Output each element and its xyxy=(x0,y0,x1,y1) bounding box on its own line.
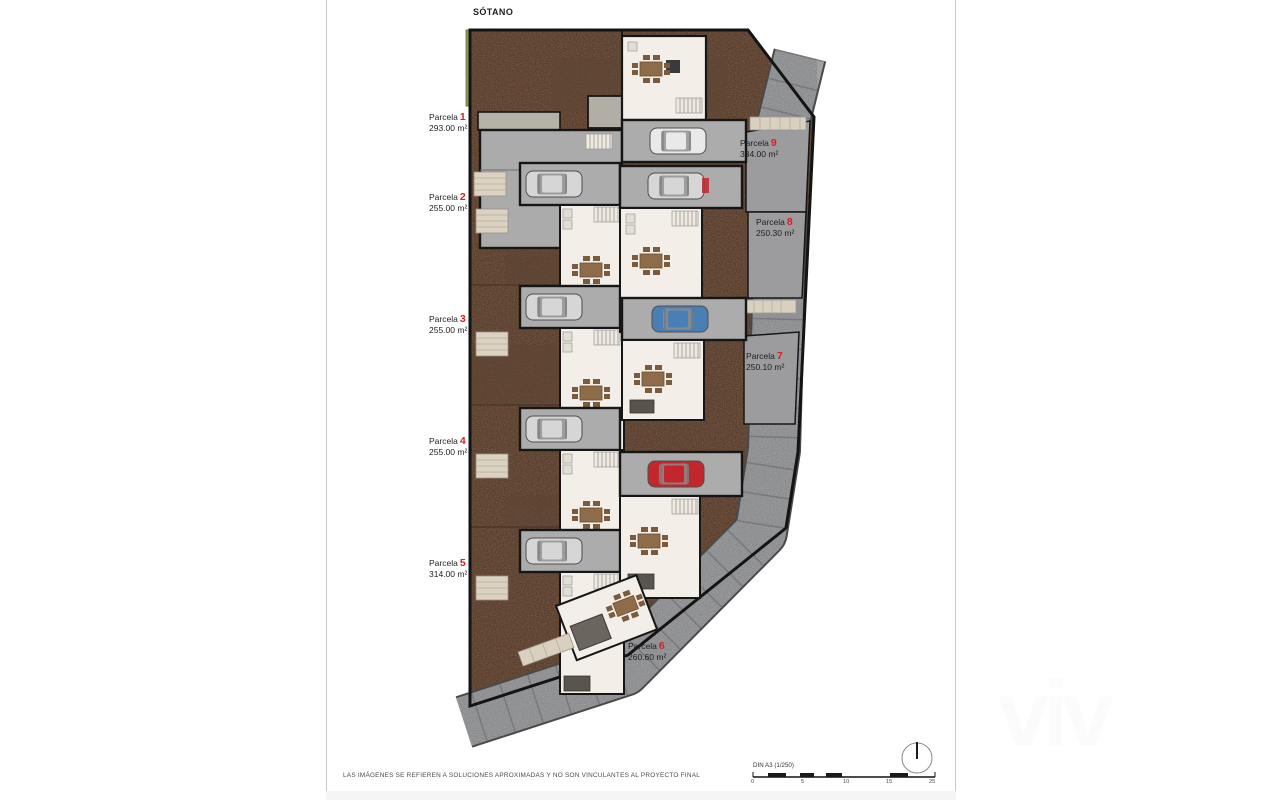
scale-bar-label: DIN A3 (1/250) xyxy=(753,762,794,769)
scale-tick: 5 xyxy=(801,779,804,785)
parcel-label-3: Parcela3 255.00 m² xyxy=(429,314,467,335)
scale-bar-graphic xyxy=(753,772,935,777)
parcel-label-7: Parcela7 250.10 m² xyxy=(746,351,784,372)
parcel-label-4: Parcela4 255.00 m² xyxy=(429,436,467,457)
page-title: SÓTANO xyxy=(473,7,513,17)
disclaimer-text: LAS IMÁGENES SE REFIEREN A SOLUCIONES AP… xyxy=(343,772,700,779)
north-compass-icon xyxy=(902,742,932,773)
scale-tick: 0 xyxy=(751,779,754,785)
parcel-label-5: Parcela5 314.00 m² xyxy=(429,558,467,579)
parcel-label-9: Parcela9 334.00 m² xyxy=(740,138,778,159)
parcel-label-8: Parcela8 250.30 m² xyxy=(756,217,794,238)
site-plan-sheet: SÓTANO Parcela1 293.00 m² Parcela2 255.0… xyxy=(0,0,1280,800)
watermark: viv xyxy=(998,662,1108,767)
parcel-label-2: Parcela2 255.00 m² xyxy=(429,192,467,213)
parcel-label-6: Parcela6 260.60 m² xyxy=(628,641,666,662)
parcel-label-1: Parcela1 293.00 m² xyxy=(429,112,467,133)
scale-tick: 25 xyxy=(929,779,935,785)
scale-tick: 15 xyxy=(886,779,892,785)
scale-tick: 10 xyxy=(843,779,849,785)
